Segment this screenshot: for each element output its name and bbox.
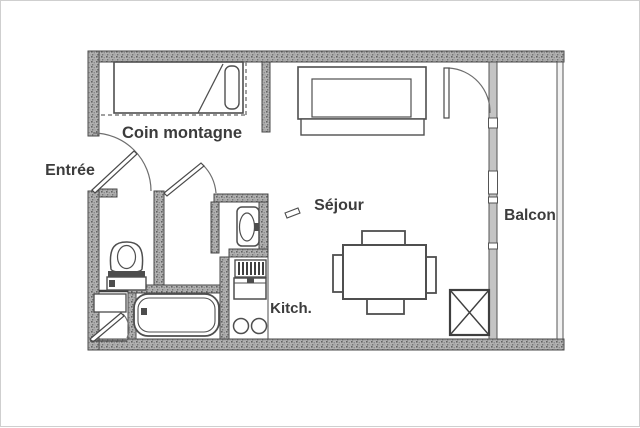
balcony-door-leaf bbox=[444, 68, 449, 118]
wall-kitchen-top bbox=[229, 249, 268, 257]
window-mullion bbox=[489, 197, 498, 203]
toilet bbox=[107, 242, 146, 290]
entry-door bbox=[92, 133, 151, 193]
balcony-door-swing-arc bbox=[449, 68, 490, 113]
label-balcon: Balcon bbox=[504, 207, 556, 224]
kitchen-unit bbox=[234, 253, 269, 339]
wall-washroom-right bbox=[259, 202, 268, 249]
chair-top bbox=[362, 231, 405, 246]
crossed-storage-box bbox=[450, 290, 489, 335]
label-entree: Entrée bbox=[45, 162, 95, 179]
label-coin-montagne: Coin montagne bbox=[122, 124, 242, 142]
wall-coin-montagne-partition bbox=[262, 62, 270, 132]
label-sejour: Séjour bbox=[314, 197, 364, 214]
stove-burner-left bbox=[234, 319, 249, 334]
wall-entry-stub bbox=[99, 189, 117, 197]
wall-washroom-left bbox=[211, 202, 219, 253]
interior-door-leaf bbox=[164, 163, 204, 196]
sofa-front bbox=[301, 119, 424, 135]
balcony-door bbox=[444, 68, 490, 118]
pillow bbox=[225, 66, 239, 109]
wall-washroom-top bbox=[214, 194, 268, 202]
window-mullion bbox=[489, 243, 498, 249]
kitchen-sink-tap bbox=[247, 278, 254, 283]
wall-left-lower bbox=[88, 191, 99, 350]
balcony-railing-wall bbox=[557, 62, 563, 339]
wall-bathroom-middle bbox=[154, 191, 164, 289]
stove-burner-right bbox=[252, 319, 267, 334]
toilet-flush-button bbox=[109, 280, 115, 287]
floor-plan-drawing: Entrée Coin montagne Séjour Balcon Kitch… bbox=[1, 1, 640, 428]
closet-shelf bbox=[94, 294, 126, 312]
chair-right bbox=[426, 257, 436, 293]
floor-plan: Entrée Coin montagne Séjour Balcon Kitch… bbox=[0, 0, 640, 427]
washbasin bbox=[237, 207, 259, 246]
sofa bbox=[298, 67, 426, 135]
single-bed bbox=[114, 62, 243, 113]
window-mullion bbox=[489, 118, 498, 128]
window-section bbox=[489, 171, 498, 194]
entry-door-leaf bbox=[92, 151, 137, 193]
small-fixture bbox=[285, 208, 300, 218]
chair-bottom bbox=[367, 299, 404, 314]
interior-door bbox=[164, 163, 216, 196]
wall-bottom bbox=[88, 339, 564, 350]
dining-table bbox=[343, 245, 426, 299]
dining-table-set bbox=[333, 231, 436, 314]
label-kitchen: Kitch. bbox=[270, 300, 312, 317]
chair-left bbox=[333, 255, 343, 292]
wall-left-upper bbox=[88, 51, 99, 136]
bathtub bbox=[134, 294, 219, 336]
bathtub-drain bbox=[141, 308, 147, 315]
sofa-seat bbox=[312, 79, 411, 117]
dish-drainer-slats bbox=[239, 262, 263, 275]
wall-top bbox=[88, 51, 564, 62]
wall-kitchen-left bbox=[220, 257, 229, 339]
washbasin-tap bbox=[254, 223, 259, 231]
interior-door-swing-arc bbox=[203, 165, 216, 193]
toilet-seat-hinge bbox=[108, 271, 145, 277]
